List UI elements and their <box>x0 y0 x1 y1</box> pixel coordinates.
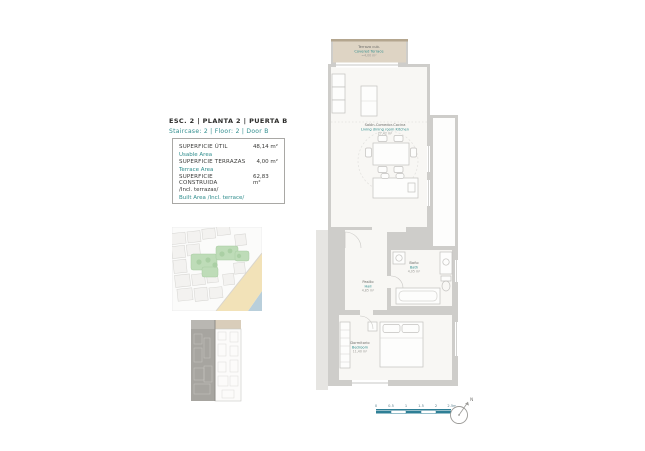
svg-text:27,42 m²: 27,42 m² <box>378 132 393 136</box>
unit-key-plan <box>188 318 246 408</box>
terrace-window <box>336 63 398 68</box>
area-row-built: SUPERFICIE CONSTRUIDA 62,83 m² /Incl. te… <box>179 174 278 203</box>
scale-bar: 0 0.5 1 1.5 2 2.5m <box>374 401 456 417</box>
built-area-label-en: Built Area /Incl. terrace/ <box>179 195 278 202</box>
dining-table <box>373 143 409 165</box>
north-arrow-icon: N <box>447 394 475 426</box>
bed <box>380 322 423 367</box>
usable-area-label-en: Usable Area <box>179 152 278 159</box>
terrace-area-label-en: Terrace Area <box>179 167 278 174</box>
key-plan-graphic <box>188 318 246 408</box>
floor-plan-graphic: Terraza cub. Covered Terrace =4,00 m² Sa… <box>316 26 466 398</box>
svg-text:4,05 m²: 4,05 m² <box>408 270 421 274</box>
area-row-terrace: SUPERFICIE TERRAZAS 4,00 m² Terrace Area <box>179 159 278 174</box>
kitchen-island <box>361 86 377 116</box>
svg-text:4,85 m²: 4,85 m² <box>362 289 375 293</box>
svg-text:Pasillo: Pasillo <box>362 280 373 284</box>
terrace-area-value: 4,00 m² <box>256 159 278 166</box>
svg-text:0.5: 0.5 <box>388 404 394 408</box>
scale-bar-graphic: 0 0.5 1 1.5 2 2.5m <box>374 401 456 417</box>
bath-sink <box>440 252 452 274</box>
svg-text:Baño: Baño <box>409 261 418 265</box>
north-label: N <box>470 397 473 403</box>
site-map-graphic <box>172 227 262 311</box>
north-arrow: N <box>447 394 475 426</box>
svg-text:1.5: 1.5 <box>418 404 424 408</box>
keyplan-neighbor-terrace <box>191 320 215 329</box>
plan-neighbor-area <box>316 230 328 390</box>
svg-text:2: 2 <box>435 404 437 408</box>
svg-text:0: 0 <box>375 404 378 408</box>
balcony-strip <box>433 118 455 246</box>
svg-text:Dormitorio: Dormitorio <box>350 341 369 345</box>
scale-segments <box>376 411 451 414</box>
keyplan-neighbor-unit <box>191 329 215 401</box>
shelving-unit <box>332 74 345 113</box>
site-location-map <box>172 227 262 311</box>
hall-floor <box>345 230 387 310</box>
bath-window <box>455 260 458 282</box>
plan-sheet: ESC. 2 | PLANTA 2 | PUERTA B Staircase: … <box>0 0 645 451</box>
svg-text:Salón-Comedor-Cocina: Salón-Comedor-Cocina <box>365 123 406 127</box>
area-row-usable: SUPERFICIE ÚTIL 48,14 m² Usable Area <box>179 144 278 159</box>
bathtub <box>396 288 440 304</box>
washer <box>393 252 405 264</box>
svg-text:11,40 m²: 11,40 m² <box>353 350 368 354</box>
wardrobe <box>340 322 350 368</box>
scale-tick-labels: 0 0.5 1 1.5 2 2.5m <box>375 404 456 408</box>
usable-area-label-es: SUPERFICIE ÚTIL <box>179 144 228 151</box>
svg-text:=4,00 m²: =4,00 m² <box>361 53 377 57</box>
title-block: ESC. 2 | PLANTA 2 | PUERTA B Staircase: … <box>169 117 319 135</box>
keyplan-unit-terrace <box>215 320 241 329</box>
terrace-area-label-es: SUPERFICIE TERRAZAS <box>179 159 245 166</box>
terrace-edge <box>331 39 408 42</box>
bedroom-label: Dormitorio Bedroom 11,40 m² <box>350 341 369 354</box>
title-spanish: ESC. 2 | PLANTA 2 | PUERTA B <box>169 117 319 125</box>
svg-text:1: 1 <box>405 404 407 408</box>
usable-area-value: 48,14 m² <box>253 144 278 151</box>
title-english: Staircase: 2 | Floor: 2 | Door B <box>169 128 319 135</box>
main-floor-plan: Terraza cub. Covered Terrace =4,00 m² Sa… <box>316 26 466 398</box>
built-area-label-es: SUPERFICIE CONSTRUIDA <box>179 174 253 188</box>
built-area-value: 62,83 m² <box>253 174 278 188</box>
built-area-note: /Incl. terrazas/ <box>179 187 278 194</box>
area-summary-box: SUPERFICIE ÚTIL 48,14 m² Usable Area SUP… <box>172 138 285 204</box>
